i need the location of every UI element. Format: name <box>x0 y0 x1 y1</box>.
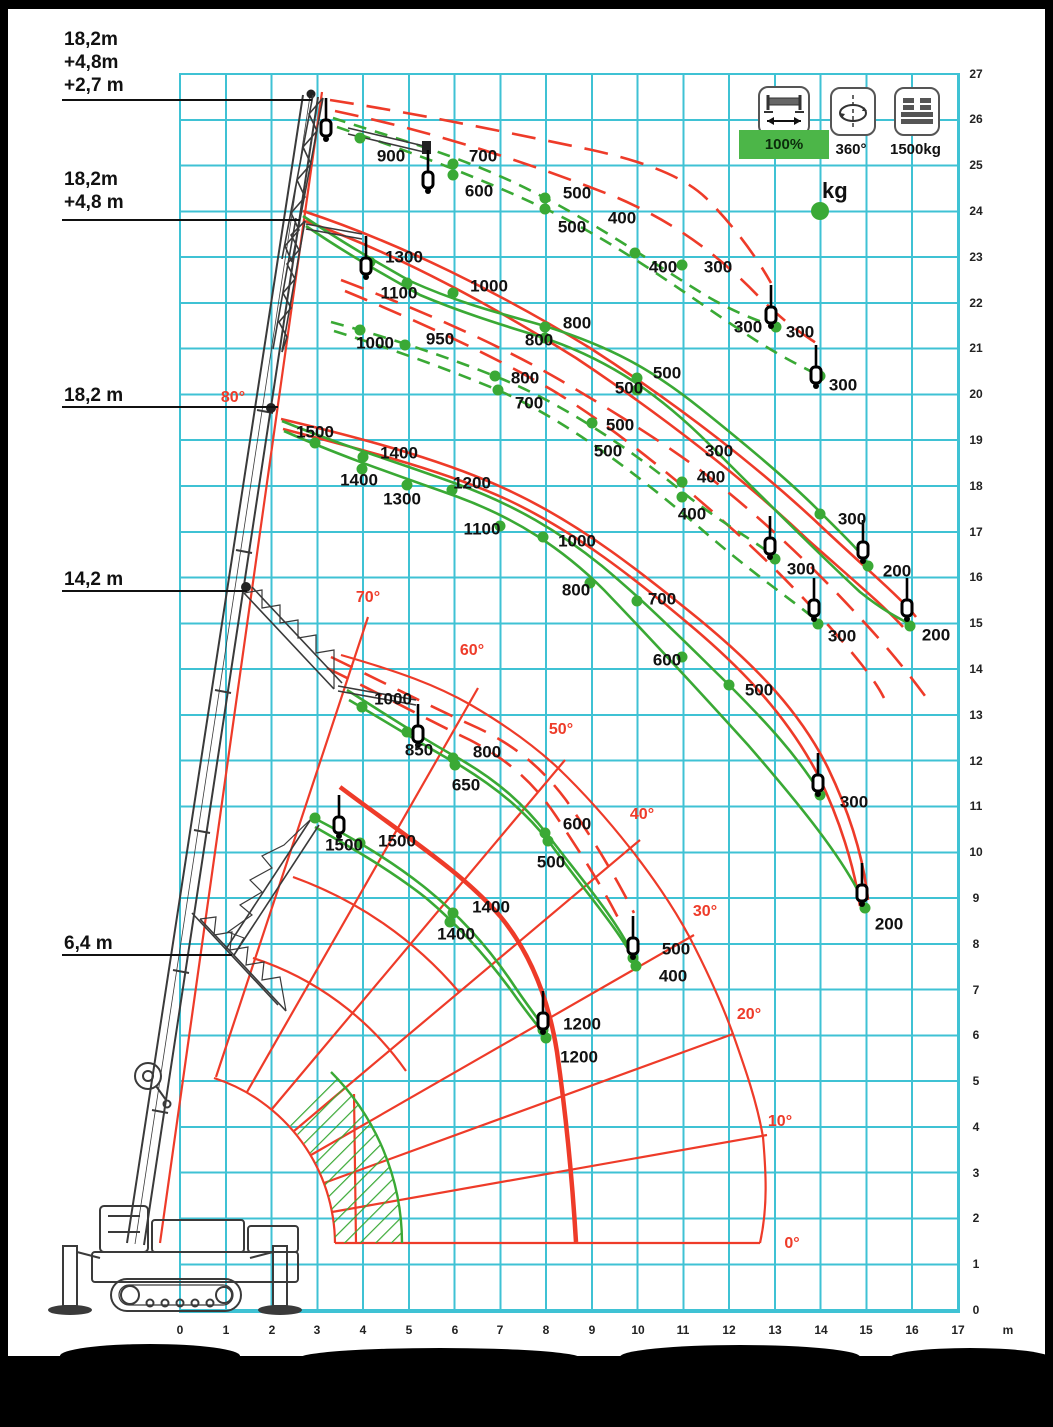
load-label: 800 <box>473 744 501 761</box>
load-label: 1000 <box>558 533 596 550</box>
pointer-line <box>62 954 232 956</box>
boom-config-line: 18,2m <box>64 28 124 51</box>
load-label: 700 <box>515 395 543 412</box>
load-label: 500 <box>563 185 591 202</box>
hook-icon <box>813 753 823 797</box>
capacity-point <box>677 492 688 503</box>
capacity-point <box>448 159 459 170</box>
angle-label: 30° <box>693 904 717 920</box>
y-axis-tick: 25 <box>969 159 982 171</box>
y-axis-tick: 17 <box>969 526 982 538</box>
x-axis-tick: 0 <box>177 1324 184 1336</box>
x-axis-tick: 12 <box>722 1324 735 1336</box>
load-chart-page: 9007006005005004004003003003003001300110… <box>0 0 1053 1427</box>
boom-config-line: +2,7 m <box>64 74 124 97</box>
x-axis-tick: 6 <box>452 1324 459 1336</box>
outrigger-setting-badge: 100% <box>739 130 829 159</box>
y-axis-tick: 5 <box>973 1075 980 1087</box>
counterweight-label: 1500kg <box>890 141 940 158</box>
load-label: 500 <box>606 417 634 434</box>
outrigger-icon <box>758 86 810 136</box>
load-label: 200 <box>875 916 903 933</box>
x-axis-tick: 8 <box>543 1324 550 1336</box>
pointer-line <box>62 406 278 408</box>
y-axis-tick: 8 <box>973 938 980 950</box>
capacity-point <box>677 477 688 488</box>
load-label: 1500 <box>378 833 416 850</box>
x-axis-tick: 2 <box>269 1324 276 1336</box>
boom-config-line: 18,2m <box>64 168 124 191</box>
capacity-point <box>811 202 829 220</box>
x-axis-tick: 13 <box>768 1324 781 1336</box>
red-solid-curves <box>281 211 916 906</box>
frame-left <box>0 0 8 1427</box>
slew-360-icon <box>830 87 876 136</box>
boom-config-line: +4,8m <box>64 51 124 74</box>
hook-icon <box>809 578 819 622</box>
load-label: 950 <box>426 331 454 348</box>
y-axis-tick: 3 <box>973 1167 980 1179</box>
load-label: 300 <box>734 319 762 336</box>
frame-right <box>1045 0 1053 1427</box>
frame-bottom-edge <box>890 1348 1050 1368</box>
load-label: 1000 <box>374 691 412 708</box>
load-label: 1000 <box>470 278 508 295</box>
y-axis-tick: 23 <box>969 251 982 263</box>
hook-icon <box>538 991 548 1035</box>
load-label: 500 <box>594 443 622 460</box>
capacity-point <box>631 961 642 972</box>
x-axis-tick: 9 <box>589 1324 596 1336</box>
capacity-point <box>543 836 554 847</box>
capacity-point <box>448 288 459 299</box>
load-label: 300 <box>838 511 866 528</box>
y-axis-tick: 6 <box>973 1029 980 1041</box>
load-label: 850 <box>405 742 433 759</box>
load-label: 300 <box>840 794 868 811</box>
x-axis-tick: 11 <box>677 1324 690 1336</box>
load-label: 300 <box>828 628 856 645</box>
load-label: 500 <box>653 365 681 382</box>
capacity-point <box>493 385 504 396</box>
load-label: 300 <box>787 561 815 578</box>
x-axis-tick: 10 <box>631 1324 644 1336</box>
hook-icon <box>334 795 344 839</box>
load-label: 650 <box>452 777 480 794</box>
capacity-point <box>357 702 368 713</box>
load-label: 600 <box>653 652 681 669</box>
capacity-point <box>630 248 641 259</box>
y-axis-tick: 26 <box>969 113 982 125</box>
y-axis-tick: 21 <box>969 342 982 354</box>
angle-label: 40° <box>630 807 654 823</box>
capacity-point <box>355 133 366 144</box>
angle-label: 0° <box>784 1236 799 1252</box>
chart-canvas <box>0 0 1053 1427</box>
hook-icon <box>811 345 821 389</box>
load-label: 500 <box>662 941 690 958</box>
y-axis-tick: 16 <box>969 571 982 583</box>
boom-config-label-4: 14,2 m <box>64 568 123 591</box>
load-label: 1300 <box>383 491 421 508</box>
capacity-point <box>540 193 551 204</box>
y-axis-tick: 2 <box>973 1212 980 1224</box>
y-axis-tick: 10 <box>969 846 982 858</box>
load-label: 400 <box>697 469 725 486</box>
load-label: 1500 <box>325 837 363 854</box>
capacity-point <box>310 813 321 824</box>
angle-label: 60° <box>460 643 484 659</box>
x-axis-tick: 7 <box>497 1324 504 1336</box>
angle-label: 10° <box>768 1114 792 1130</box>
y-axis-tick: 1 <box>973 1258 980 1270</box>
angle-label: 80° <box>221 390 245 406</box>
x-axis-tick: 4 <box>360 1324 367 1336</box>
capacity-point <box>450 760 461 771</box>
load-label: 800 <box>525 332 553 349</box>
load-label: 500 <box>745 682 773 699</box>
load-label: 800 <box>563 315 591 332</box>
load-label: 300 <box>786 324 814 341</box>
load-label: 600 <box>563 816 591 833</box>
y-axis-tick: 20 <box>969 388 982 400</box>
y-axis-tick: 0 <box>973 1304 980 1316</box>
frame-bottom-edge <box>620 1345 860 1369</box>
pointer-line <box>62 219 300 221</box>
load-label: 1200 <box>560 1049 598 1066</box>
x-axis-tick: 5 <box>406 1324 413 1336</box>
boom-config-label-3: 18,2 m <box>64 384 123 407</box>
load-label: 800 <box>562 582 590 599</box>
load-unit-label: kg <box>822 178 848 204</box>
capacity-point <box>540 204 551 215</box>
pointer-line <box>62 590 247 592</box>
load-label: 1300 <box>385 249 423 266</box>
load-label: 1200 <box>453 475 491 492</box>
capacity-point <box>724 680 735 691</box>
load-label: 300 <box>704 259 732 276</box>
capacity-point <box>400 340 411 351</box>
y-axis-tick: 4 <box>973 1121 980 1133</box>
load-label: 500 <box>558 219 586 236</box>
load-label: 300 <box>829 377 857 394</box>
load-label: 1000 <box>356 335 394 352</box>
boom-config-line: 14,2 m <box>64 568 123 591</box>
boom-config-line: 6,4 m <box>64 932 113 955</box>
capacity-point <box>358 452 369 463</box>
capacity-point <box>905 621 916 632</box>
capacity-point <box>448 170 459 181</box>
capacity-point <box>538 532 549 543</box>
pointer-line <box>62 99 312 101</box>
y-axis-tick: 27 <box>969 68 982 80</box>
load-label: 400 <box>659 968 687 985</box>
boom-config-label-1: 18,2m +4,8m +2,7 m <box>64 28 124 97</box>
load-label: 400 <box>649 259 677 276</box>
load-label: 400 <box>608 210 636 227</box>
load-label: 1400 <box>472 899 510 916</box>
load-label: 1100 <box>464 521 501 538</box>
load-label: 400 <box>678 506 706 523</box>
load-label: 500 <box>615 380 643 397</box>
hook-icon <box>902 578 912 622</box>
y-axis-tick: 24 <box>969 205 982 217</box>
boom-config-label-2: 18,2m +4,8 m <box>64 168 124 214</box>
load-label: 800 <box>511 370 539 387</box>
y-axis-tick: 14 <box>969 663 982 675</box>
load-label: 200 <box>883 563 911 580</box>
x-axis-tick: 1 <box>223 1324 230 1336</box>
boom-config-label-5: 6,4 m <box>64 932 113 955</box>
capacity-point <box>587 418 598 429</box>
angle-label: 20° <box>737 1007 761 1023</box>
load-label: 700 <box>648 591 676 608</box>
hook-icon <box>857 863 867 907</box>
x-axis-unit: m <box>1003 1323 1014 1337</box>
frame-top <box>0 0 1053 9</box>
load-label: 1400 <box>380 445 418 462</box>
y-axis-tick: 15 <box>969 617 982 629</box>
hatched-zone <box>284 1072 402 1243</box>
y-axis-tick: 11 <box>970 800 983 812</box>
y-axis-tick: 13 <box>969 709 982 721</box>
capacity-point <box>402 727 413 738</box>
boom-config-line: +4,8 m <box>64 191 124 214</box>
angle-label: 70° <box>356 590 380 606</box>
load-label: 1500 <box>296 424 334 441</box>
load-label: 1100 <box>381 285 418 302</box>
load-label: 700 <box>469 148 497 165</box>
capacity-point <box>490 371 501 382</box>
load-label: 900 <box>377 148 405 165</box>
y-axis-tick: 7 <box>973 984 980 996</box>
x-axis-tick: 3 <box>314 1324 321 1336</box>
load-label: 500 <box>537 854 565 871</box>
counterweight-icon <box>894 87 940 136</box>
capacity-point <box>677 260 688 271</box>
capacity-point <box>815 509 826 520</box>
frame-bottom-edge <box>60 1344 240 1368</box>
load-label: 1400 <box>340 472 378 489</box>
y-axis-tick: 22 <box>969 297 982 309</box>
load-label: 300 <box>705 443 733 460</box>
boom-config-line: 18,2 m <box>64 384 123 407</box>
hook-icon <box>766 285 776 329</box>
capacity-point <box>632 596 643 607</box>
x-axis-tick: 17 <box>951 1324 964 1336</box>
load-label: 1200 <box>563 1016 601 1033</box>
y-axis-tick: 18 <box>969 480 982 492</box>
load-label: 1400 <box>437 926 475 943</box>
x-axis-tick: 14 <box>814 1324 827 1336</box>
hook-icon <box>628 916 638 960</box>
load-label: 600 <box>465 183 493 200</box>
x-axis-tick: 16 <box>905 1324 918 1336</box>
load-label: 200 <box>922 627 950 644</box>
y-axis-tick: 19 <box>969 434 982 446</box>
slew-label: 360° <box>830 141 872 158</box>
frame-bottom-edge <box>300 1348 580 1368</box>
y-axis-tick: 9 <box>973 892 980 904</box>
y-axis-tick: 12 <box>969 755 982 767</box>
hook-icon <box>765 516 775 560</box>
angle-label: 50° <box>549 722 573 738</box>
x-axis-tick: 15 <box>859 1324 872 1336</box>
